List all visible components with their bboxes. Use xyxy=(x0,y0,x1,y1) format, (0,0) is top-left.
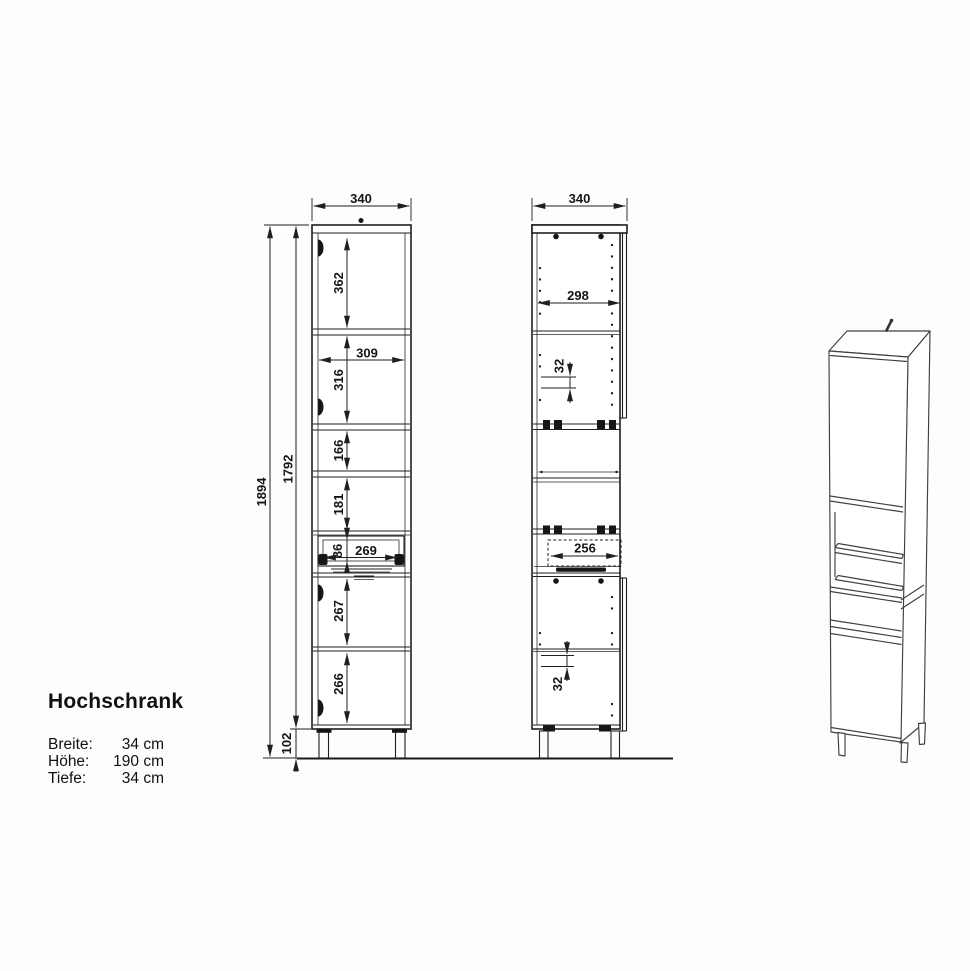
spec-row-breite: Breite: 34 cm xyxy=(48,736,164,753)
spec-row-tiefe: Tiefe: 34 cm xyxy=(48,770,164,787)
side-view-cabinet xyxy=(532,225,627,758)
top-knob xyxy=(359,218,364,223)
cabinet-front-face xyxy=(829,351,908,742)
leg xyxy=(540,731,549,758)
hinge-bore xyxy=(553,578,559,584)
front-view-cabinet xyxy=(312,218,411,758)
spec-label: Höhe: xyxy=(48,753,89,770)
leg-3d xyxy=(838,733,845,757)
dim-front-compartment-6: 266 xyxy=(331,673,346,695)
hinge-bore xyxy=(598,234,604,240)
spec-value: 34 cm xyxy=(122,736,164,753)
top-knob-3d-cap xyxy=(890,319,894,323)
spec-row-hoehe: Höhe: 190 cm xyxy=(48,753,164,770)
leg-3d xyxy=(919,723,926,745)
title-block: Hochschrank Breite: 34 cm Höhe: 190 cm T… xyxy=(48,690,188,788)
dim-side-hole-pitch-upper: 32 xyxy=(552,359,567,373)
technical-drawing-sheet: 340 1894 1792 102 362 309 316 166 181 xyxy=(0,0,970,971)
dim-front-compartment-4: 181 xyxy=(331,494,346,516)
hinge-bore xyxy=(598,578,604,584)
drawing-canvas: 340 1894 1792 102 362 309 316 166 181 xyxy=(0,0,970,971)
front-view: 340 1894 1792 102 362 309 316 166 181 xyxy=(254,191,411,772)
dim-side-depth: 340 xyxy=(569,191,591,206)
spec-label: Breite: xyxy=(48,736,93,753)
leg xyxy=(319,729,329,758)
perspective-view xyxy=(829,319,930,763)
dim-front-carcass-height: 1792 xyxy=(281,455,296,484)
leg xyxy=(396,729,406,758)
side-view: 340 298 32 256 32 xyxy=(532,191,627,758)
dim-front-width: 340 xyxy=(350,191,372,206)
drawer-slide xyxy=(556,568,606,572)
dim-side-hole-pitch-lower: 32 xyxy=(550,677,565,691)
product-title: Hochschrank xyxy=(48,690,188,714)
dim-front-shelf-width: 309 xyxy=(356,346,378,361)
spec-value: 34 cm xyxy=(122,770,164,787)
dim-side-drawer-depth: 256 xyxy=(574,541,596,556)
leg xyxy=(611,731,620,758)
dim-front-drawer-height: 86 xyxy=(330,544,345,558)
dim-front-drawer-width: 269 xyxy=(355,543,377,558)
dim-front-plinth-height: 102 xyxy=(279,733,294,755)
dim-front-compartment-3: 166 xyxy=(331,440,346,462)
dim-front-total-height: 1894 xyxy=(254,477,269,507)
dim-front-compartment-1: 362 xyxy=(331,272,346,294)
hinge-bore xyxy=(553,234,559,240)
spec-list: Breite: 34 cm Höhe: 190 cm Tiefe: 34 cm xyxy=(48,736,164,788)
dim-side-interior-depth: 298 xyxy=(567,288,589,303)
dim-front-compartment-5: 267 xyxy=(331,600,346,622)
dim-front-compartment-2: 316 xyxy=(331,369,346,391)
spec-label: Tiefe: xyxy=(48,770,86,787)
spec-value: 190 cm xyxy=(113,753,164,770)
leg-3d xyxy=(901,743,908,763)
